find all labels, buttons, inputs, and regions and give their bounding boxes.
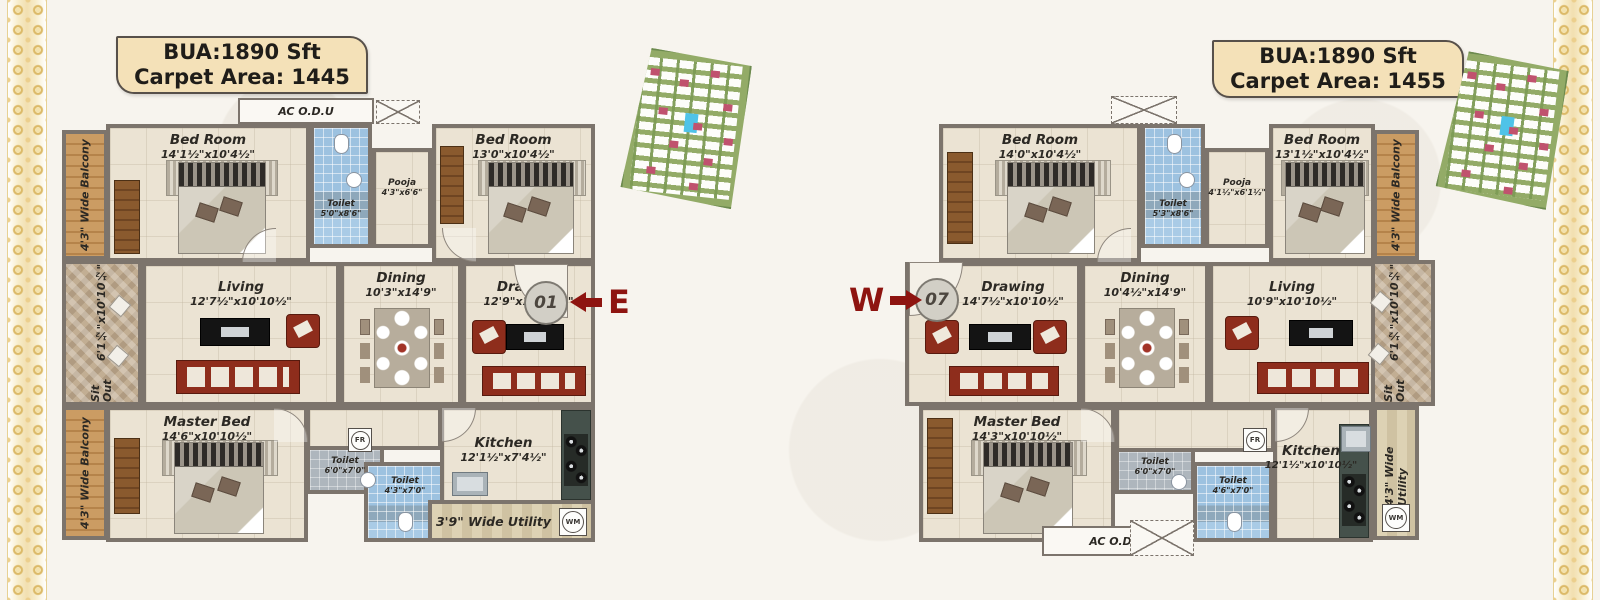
toilet-basin-icon [1171,474,1187,490]
dining-table-icon [374,308,430,388]
armchair-icon [1225,316,1259,350]
wardrobe-icon [114,438,140,514]
bed-icon [1285,162,1365,254]
washing-machine-badge: WM [559,508,587,536]
utility-side: 4'3" Wide Utility WM [1373,406,1419,540]
room-dim: 5'0"x8'6" [321,209,362,218]
toilet-wc-icon [398,512,413,532]
room-name: Kitchen [1282,444,1340,459]
room-dim: 6'0"x7'0" [325,466,366,475]
room-name: Kitchen [475,436,533,451]
washing-machine-label: WM [1385,507,1407,529]
balcony-label: 4'3" Wide Balcony [1390,139,1403,251]
wardrobe-icon [947,152,973,244]
room-dim: 12'1½"x7'4½" [460,451,546,464]
direction-indicator-east: E [570,283,636,321]
room-dim: 10'4½"x14'9" [1104,286,1187,299]
room-name: Toilet [327,199,355,209]
room-name: Bed Room [1284,133,1360,148]
pooja-room: Pooja 4'3"x6'6" [372,148,432,248]
ac-odu-unit-box [1130,520,1194,556]
room-dim: 14'7½"x10'10½" [962,295,1064,308]
ac-odu-unit-box [1111,96,1177,124]
fridge-label: FR [351,431,370,450]
bed-icon [174,442,264,534]
room-name: Dining [1120,271,1169,286]
tv-unit-icon [506,324,564,350]
site-pool [683,113,698,133]
sitout-dim: 6'1½"x10'10½" [1389,264,1401,361]
room-dim: 12'1½"x10'10½" [1265,459,1357,472]
stove-icon [564,434,588,486]
room-name: Toilet [1159,199,1187,209]
ac-odu-label: AC O.D.U [238,98,374,124]
armchair-icon [925,320,959,354]
bedroom-2: Bed Room 13'0"x10'4½" [432,124,595,262]
toilet-basin-icon [346,172,362,188]
room-dim: 13'1½"x10'4½" [1275,148,1369,161]
fridge-label: FR [1246,431,1265,450]
room-name: Master Bed [164,415,251,430]
arrow-right-icon [906,290,922,310]
site-pool [1499,115,1514,135]
floor-plan-unit-07: Bed Room 14'0"x10'4½" Toilet 5'3"x8'6" P… [905,110,1435,548]
toilet-1: Toilet 5'3"x8'6" [1141,124,1205,248]
sink-icon [452,472,488,496]
bua-text: BUA:1890 Sft [1259,44,1417,69]
room-name: Bed Room [170,133,246,148]
floorplan-brochure: BUA:1890 Sft Carpet Area: 1445 AC O.D.U … [0,0,1600,600]
arrow-left-icon [570,292,586,312]
dining-table-icon [1119,308,1175,388]
stove-icon [1342,474,1366,526]
direction-letter: W [849,281,884,319]
pooja-room: Pooja 4'1½"x6'1½" [1205,148,1269,248]
door-arc [1275,408,1309,442]
utility: 3'9" Wide Utility WM [428,500,595,542]
title-box-unit-07: BUA:1890 Sft Carpet Area: 1455 [1212,40,1464,98]
kitchen: Kitchen 12'1½"x7'4½" [440,406,595,504]
room-dim: 13'0"x10'4½" [472,148,555,161]
room-name: Toilet [391,476,419,486]
floor-plan-unit-01: AC O.D.U 4'3" Wide Balcony Sit Out 6'1½"… [62,110,595,548]
room-dim: 10'9"x10'10½" [1247,295,1337,308]
sofa-icon [1257,362,1369,394]
toilet-2: Toilet 6'0"x7'0" [1115,448,1195,494]
armchair-icon [1033,320,1067,354]
room-name: Toilet [1141,457,1169,467]
toilet-basin-icon [1179,172,1195,188]
room-dim: 14'6"x10'10½" [162,430,252,443]
door-arc [1097,228,1131,262]
dining-room: Dining 10'3"x14'9" [340,262,462,406]
armchair-icon [472,320,506,354]
utility-label: 3'9" Wide Utility [436,514,551,529]
tv-unit-icon [200,318,270,346]
utility-label: 4'3" Wide Utility [1383,410,1409,506]
fridge-badge: FR [348,428,372,452]
room-dim: 4'3"x6'6" [382,188,423,197]
room-name: Drawing [981,280,1044,295]
sofa-icon [482,366,586,396]
toilet-wc-icon [1227,512,1242,532]
bedroom-2: Bed Room 13'1½"x10'4½" [1269,124,1375,262]
toilet-3: Toilet 4'6"x7'0" [1193,462,1273,542]
carpet-area-text: Carpet Area: 1445 [134,65,350,90]
sofa-icon [176,360,300,394]
room-dim: 5'3"x8'6" [1153,209,1194,218]
site-highlight-blocks [650,68,660,76]
sitout-name: Sit Out [1383,362,1407,402]
balcony-bottom-left: 4'3" Wide Balcony [62,406,108,540]
room-name: Pooja [1223,178,1251,188]
room-dim: 6'0"x7'0" [1135,467,1176,476]
passage [306,406,442,450]
bed-icon [983,442,1073,534]
room-dim: 14'0"x10'4½" [999,148,1082,161]
room-dim: 4'3"x7'0" [385,486,426,495]
room-name: Master Bed [974,415,1061,430]
room-name: Bed Room [475,133,551,148]
ac-odu-unit-box [376,100,420,124]
site-key-plan-left [619,46,752,210]
dining-room: Dining 10'4½"x14'9" [1081,262,1209,406]
sit-out: Sit Out 6'1½"x10'10½" [62,260,142,406]
master-bedroom: Master Bed 14'3"x10'10½" [919,406,1115,542]
site-highlight-blocks [1467,71,1477,79]
sitout-name: Sit Out [90,362,114,402]
ac-odu-text: AC O.D.U [278,105,334,118]
bua-text: BUA:1890 Sft [163,40,321,65]
room-name: Dining [376,271,425,286]
bedroom-1: Bed Room 14'1½"x10'4½" [106,124,310,262]
carpet-area-text: Carpet Area: 1455 [1230,69,1446,94]
room-name: Pooja [388,178,416,188]
balcony-top-left: 4'3" Wide Balcony [62,130,108,260]
bed-icon [488,162,574,254]
sofa-icon [949,366,1059,396]
room-dim: 12'7½"x10'10½" [190,295,292,308]
direction-letter: E [608,283,630,321]
room-dim: 14'3"x10'10½" [972,430,1062,443]
door-arc [274,408,308,442]
room-name: Toilet [331,456,359,466]
living-room: Living 10'9"x10'10½" [1209,262,1375,406]
arrow-shaft [586,298,602,307]
toilet-1: Toilet 5'0"x8'6" [310,124,372,248]
balcony-top-right: 4'3" Wide Balcony [1373,130,1419,260]
washing-machine-badge: WM [1382,504,1410,532]
living-room: Living 12'7½"x10'10½" [142,262,340,406]
room-name: Toilet [1219,476,1247,486]
tv-unit-icon [1289,320,1353,346]
bedroom-1: Bed Room 14'0"x10'4½" [939,124,1141,262]
room-name: Bed Room [1002,133,1078,148]
room-name: Living [1269,280,1315,295]
direction-indicator-west: W [843,281,922,319]
balcony-label: 4'3" Wide Balcony [79,417,92,529]
room-dim: 10'3"x14'9" [365,286,436,299]
wardrobe-icon [114,180,140,254]
sitout-dim: 6'1½"x10'10½" [96,264,108,361]
arrow-shaft [890,296,906,305]
room-dim: 14'1½"x10'4½" [161,148,255,161]
room-dim: 4'6"x7'0" [1213,486,1254,495]
master-bedroom: Master Bed 14'6"x10'10½" [106,406,308,542]
fridge-badge: FR [1243,428,1267,452]
gold-lace-border-left [7,0,47,600]
unit-number: 07 [925,290,949,310]
armchair-icon [286,314,320,348]
unit-number-badge: 01 [524,281,568,325]
balcony-label: 4'3" Wide Balcony [79,139,92,251]
tv-unit-icon [969,324,1031,350]
door-arc [442,228,476,262]
washing-machine-label: WM [562,511,584,533]
kitchen: Kitchen 12'1½"x10'10½" [1273,406,1373,542]
room-dim: 4'1½"x6'1½" [1208,188,1265,197]
title-box-unit-01: BUA:1890 Sft Carpet Area: 1445 [116,36,368,94]
toilet-wc-icon [1167,134,1182,154]
bed-icon [1007,162,1095,254]
unit-number: 01 [534,293,558,313]
door-arc [1081,408,1115,442]
room-name: Living [218,280,264,295]
toilet-wc-icon [334,134,349,154]
